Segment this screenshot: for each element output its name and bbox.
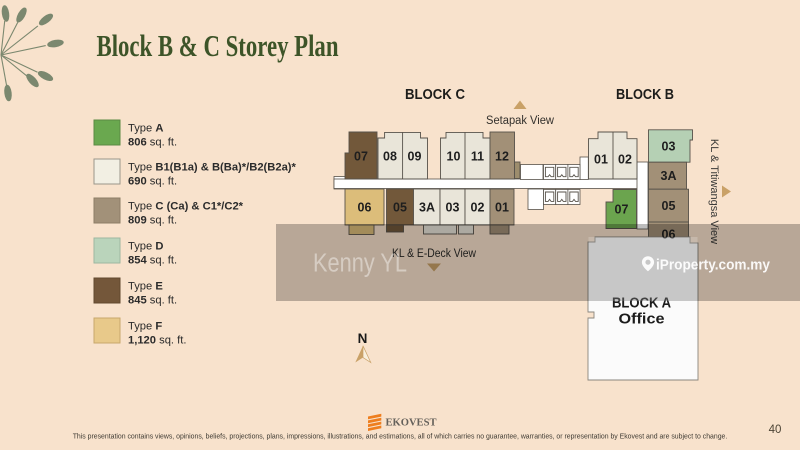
svg-text:806 sq. ft.: 806 sq. ft. — [128, 137, 177, 149]
svg-text:N: N — [358, 331, 368, 346]
svg-text:3A: 3A — [419, 201, 435, 215]
svg-text:05: 05 — [662, 199, 676, 213]
svg-text:Office: Office — [619, 312, 665, 328]
svg-text:3A: 3A — [661, 169, 677, 183]
svg-text:845 sq. ft.: 845 sq. ft. — [128, 295, 177, 307]
svg-text:06: 06 — [358, 201, 372, 215]
svg-text:05: 05 — [393, 201, 407, 215]
svg-text:Type B1(B1a) & B(Ba)*/B2(B2a)*: Type B1(B1a) & B(Ba)*/B2(B2a)* — [128, 162, 297, 174]
svg-text:Block B & C Storey Plan: Block B & C Storey Plan — [97, 28, 339, 63]
svg-text:10: 10 — [447, 150, 461, 164]
svg-text:09: 09 — [408, 150, 422, 164]
svg-text:854 sq. ft.: 854 sq. ft. — [128, 255, 177, 267]
svg-text:02: 02 — [471, 201, 485, 215]
svg-text:BLOCK C: BLOCK C — [405, 87, 465, 103]
svg-text:07: 07 — [615, 203, 629, 217]
svg-text:This presentation contains vie: This presentation contains views, opinio… — [73, 434, 728, 441]
svg-text:Type A: Type A — [128, 123, 163, 135]
svg-text:Setapak View: Setapak View — [486, 115, 555, 127]
svg-text:11: 11 — [471, 150, 484, 164]
svg-text:08: 08 — [383, 150, 397, 164]
svg-text:Kenny YL: Kenny YL — [313, 250, 407, 278]
svg-text:BLOCK B: BLOCK B — [616, 87, 674, 103]
svg-text:Type E: Type E — [128, 281, 163, 293]
svg-text:Type D: Type D — [128, 241, 163, 253]
svg-text:02: 02 — [618, 153, 632, 167]
svg-text:12: 12 — [495, 150, 509, 164]
svg-text:iProperty.com.my: iProperty.com.my — [656, 258, 770, 274]
svg-text:Type F: Type F — [128, 321, 162, 333]
svg-text:1,120 sq. ft.: 1,120 sq. ft. — [128, 335, 186, 347]
svg-text:40: 40 — [769, 424, 782, 436]
svg-text:809 sq. ft.: 809 sq. ft. — [128, 215, 177, 227]
svg-text:EKOVEST: EKOVEST — [386, 418, 437, 429]
svg-text:03: 03 — [662, 140, 676, 154]
svg-text:07: 07 — [354, 150, 368, 164]
svg-text:03: 03 — [446, 201, 460, 215]
svg-text:Type C (Ca) & C1*/C2*: Type C (Ca) & C1*/C2* — [128, 201, 244, 213]
svg-text:01: 01 — [495, 201, 509, 215]
svg-text:01: 01 — [594, 153, 608, 167]
svg-text:690 sq. ft.: 690 sq. ft. — [128, 176, 177, 188]
